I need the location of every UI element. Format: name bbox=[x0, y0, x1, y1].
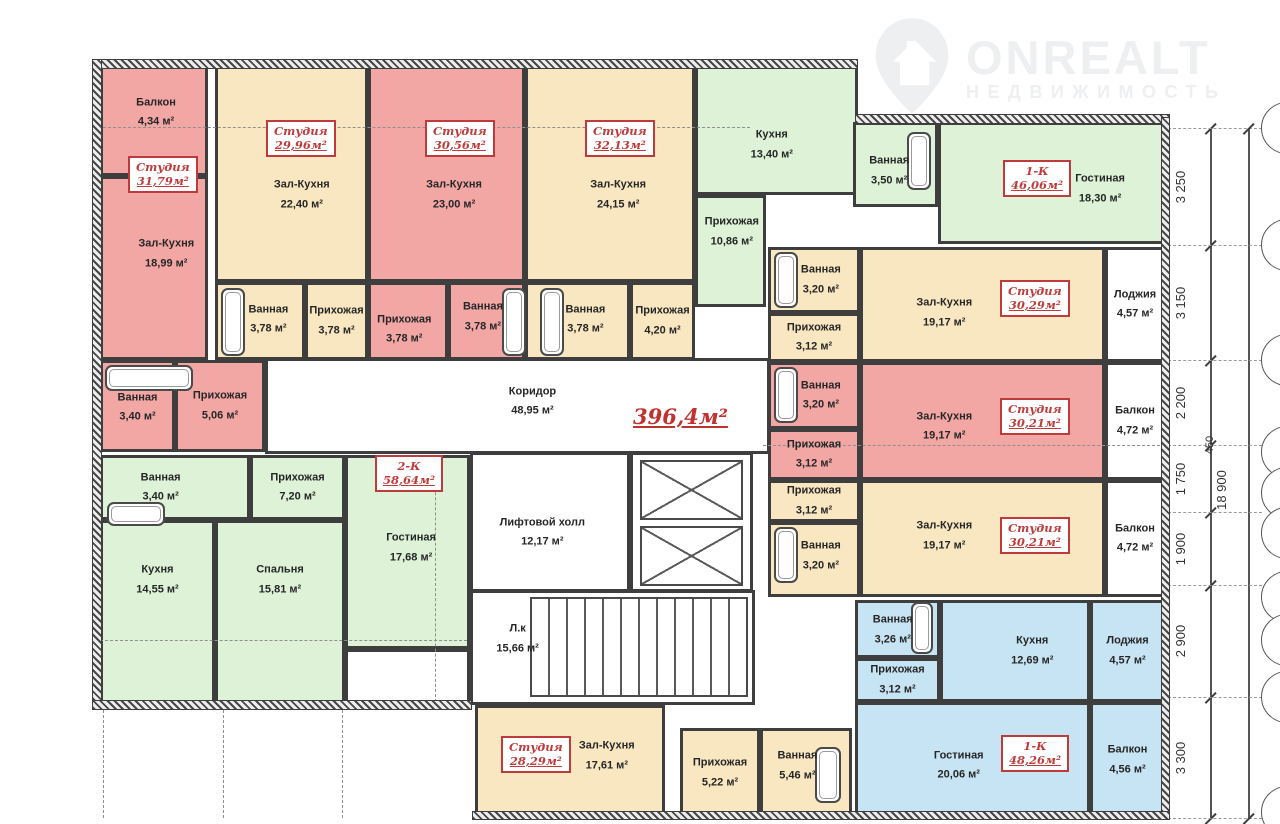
grid-axis-bubble bbox=[1261, 786, 1280, 824]
grid-axis-bubble bbox=[1261, 614, 1280, 666]
unit-area-tag: Студия30,21м² bbox=[1000, 398, 1070, 435]
room-label: Л.к15,66 м² bbox=[496, 622, 538, 656]
unit-area-tag: Студия28,29м² bbox=[501, 736, 571, 773]
dimension-leader-line bbox=[1168, 512, 1262, 513]
dimension-leader-line bbox=[1168, 585, 1262, 586]
room-label: Прихожая3,78 м² bbox=[377, 313, 431, 347]
dimension-leader-line bbox=[1168, 360, 1262, 361]
dimension-line bbox=[1248, 128, 1250, 818]
room-label: Зал-Кухня22,40 м² bbox=[274, 178, 330, 212]
room-label: Балкон4,56 м² bbox=[1108, 743, 1148, 777]
watermark-logo: ONREALT НЕДВИЖИМОСТЬ bbox=[868, 16, 1248, 120]
grid-axis-bubble: П bbox=[1261, 507, 1280, 559]
room-label: Зал-Кухня17,61 м² bbox=[579, 739, 635, 773]
axis-line bbox=[100, 640, 467, 641]
room-label: Кухня13,40 м² bbox=[751, 129, 793, 163]
room-label: Ванная5,46 м² bbox=[777, 750, 817, 784]
grid-axis-bubble: Х bbox=[1261, 219, 1280, 271]
dimension-label: 3 300 bbox=[1173, 738, 1191, 778]
bathtub-icon bbox=[774, 527, 798, 583]
room-label: Прихожая4,20 м² bbox=[635, 304, 689, 338]
room-label: Зал-Кухня19,17 м² bbox=[916, 520, 972, 554]
grid-axis-bubble bbox=[1261, 334, 1280, 386]
dimension-label: 1 750 bbox=[1173, 459, 1191, 499]
unit-area-tag: 1-К46,06м² bbox=[1003, 160, 1071, 197]
room-label: Лифтовой холл12,17 м² bbox=[500, 516, 585, 550]
bathtub-icon bbox=[107, 502, 165, 526]
elevator-icon bbox=[640, 460, 743, 520]
unit-area-tag: Студия30,29м² bbox=[1000, 280, 1070, 317]
window-wall-hatch bbox=[92, 700, 472, 710]
room-label: Прихожая3,12 м² bbox=[870, 663, 924, 697]
unit-area-tag: Студия30,56м² bbox=[425, 120, 495, 157]
room-label: Коридор48,95 м² bbox=[509, 385, 556, 419]
bathtub-icon bbox=[221, 288, 245, 356]
dimension-label: 3 150 bbox=[1173, 283, 1191, 323]
room-label: Лоджия4,57 м² bbox=[1114, 288, 1156, 322]
logo-brand-text: ONREALT bbox=[966, 31, 1211, 84]
window-wall-hatch bbox=[472, 811, 1170, 820]
room-label: Балкон4,72 м² bbox=[1115, 404, 1155, 438]
axis-line bbox=[103, 710, 104, 818]
elevator-icon bbox=[640, 526, 743, 586]
room-label: Балкон4,34 м² bbox=[136, 96, 176, 130]
axis-line bbox=[435, 457, 436, 702]
room-label: Зал-Кухня19,17 м² bbox=[916, 296, 972, 330]
room-label: Ванная3,40 м² bbox=[141, 471, 181, 505]
room-label: Прихожая5,22 м² bbox=[693, 756, 747, 790]
room-label: Зал-Кухня23,00 м² bbox=[426, 178, 482, 212]
window-wall-hatch bbox=[92, 59, 102, 708]
dimension-total-label: 18 900 bbox=[1214, 470, 1232, 510]
floor-plan-page: Балкон4,34 м²Зал-Кухня18,99 м²Ванная3,40… bbox=[0, 0, 1280, 824]
dimension-leader-line bbox=[1168, 245, 1262, 246]
room-label: Прихожая10,86 м² bbox=[705, 215, 759, 249]
room-label: Лоджия4,57 м² bbox=[1106, 634, 1148, 668]
floor-total-area: 396,4м² bbox=[633, 404, 728, 429]
unit-area-tag: 1-К48,26м² bbox=[1001, 735, 1069, 772]
dimension-label: 3 250 bbox=[1173, 167, 1191, 207]
dimension-note-label: 450 bbox=[1204, 425, 1222, 465]
staircase-icon bbox=[530, 597, 748, 697]
dimension-label: 2 200 bbox=[1173, 383, 1191, 423]
house-pin-icon bbox=[868, 14, 956, 123]
room-label: Прихожая3,12 м² bbox=[787, 438, 841, 472]
axis-line bbox=[223, 710, 224, 818]
axis-line bbox=[342, 710, 343, 818]
room-label: Зал-Кухня24,15 м² bbox=[590, 178, 646, 212]
room-label: Спальня15,81 м² bbox=[256, 564, 304, 598]
room-label: Зал-Кухня18,99 м² bbox=[138, 237, 194, 271]
unit-area-tag: Студия32,13м² bbox=[585, 120, 655, 157]
room-label: Зал-Кухня19,17 м² bbox=[916, 410, 972, 444]
dimension-label: 2 900 bbox=[1173, 621, 1191, 661]
bathtub-icon bbox=[540, 288, 564, 356]
room-label: Прихожая3,78 м² bbox=[309, 304, 363, 338]
unit-area-tag: Студия30,21м² bbox=[1000, 517, 1070, 554]
room-label: Ванная3,78 м² bbox=[463, 301, 503, 335]
bathtub-icon bbox=[911, 602, 933, 654]
unit-area-tag: Студия31,79м² bbox=[128, 156, 198, 193]
room-label: Прихожая3,12 м² bbox=[787, 484, 841, 518]
room-label: Гостиная18,30 м² bbox=[1075, 172, 1125, 206]
room-label: Ванная3,40 м² bbox=[118, 391, 158, 425]
bathtub-icon bbox=[502, 288, 526, 356]
room-label: Ванная3,26 м² bbox=[873, 613, 913, 647]
room-label: Ванная3,20 м² bbox=[801, 379, 841, 413]
dimension-label: 1 900 bbox=[1173, 529, 1191, 569]
unit-area-tag: 2-К58,64м² bbox=[375, 455, 443, 492]
room-label: Ванная3,20 м² bbox=[801, 539, 841, 573]
room-label: Прихожая7,20 м² bbox=[270, 471, 324, 505]
room-label: Кухня14,55 м² bbox=[136, 564, 178, 598]
bathtub-icon bbox=[105, 365, 193, 391]
bathtub-icon bbox=[815, 747, 841, 803]
room-label: Прихожая5,06 м² bbox=[193, 389, 247, 423]
window-wall-hatch bbox=[1161, 117, 1170, 820]
room-label: Кухня12,69 м² bbox=[1011, 634, 1053, 668]
room-label: Ванная3,20 м² bbox=[801, 263, 841, 297]
bathtub-icon bbox=[774, 252, 798, 308]
logo-subtitle-text: НЕДВИЖИМОСТЬ bbox=[966, 82, 1226, 102]
dimension-leader-line bbox=[1168, 697, 1262, 698]
room-label: Гостиная20,06 м² bbox=[934, 749, 984, 783]
unit-area-tag: Студия29,96м² bbox=[266, 120, 336, 157]
room-label: Балкон4,72 м² bbox=[1115, 522, 1155, 556]
grid-axis-bubble bbox=[1261, 102, 1280, 154]
window-wall-hatch bbox=[92, 59, 858, 69]
room-label: Гостиная17,68 м² bbox=[386, 531, 436, 565]
room-label: Ванная3,50 м² bbox=[869, 154, 909, 188]
bathtub-icon bbox=[774, 367, 798, 423]
grid-axis-bubble bbox=[1261, 671, 1280, 723]
room-label: Ванная3,78 м² bbox=[248, 303, 288, 337]
room-label: Прихожая3,12 м² bbox=[787, 321, 841, 355]
dimension-line bbox=[1210, 128, 1212, 818]
bathtub-icon bbox=[907, 132, 931, 190]
room-label: Ванная3,78 м² bbox=[565, 303, 605, 337]
